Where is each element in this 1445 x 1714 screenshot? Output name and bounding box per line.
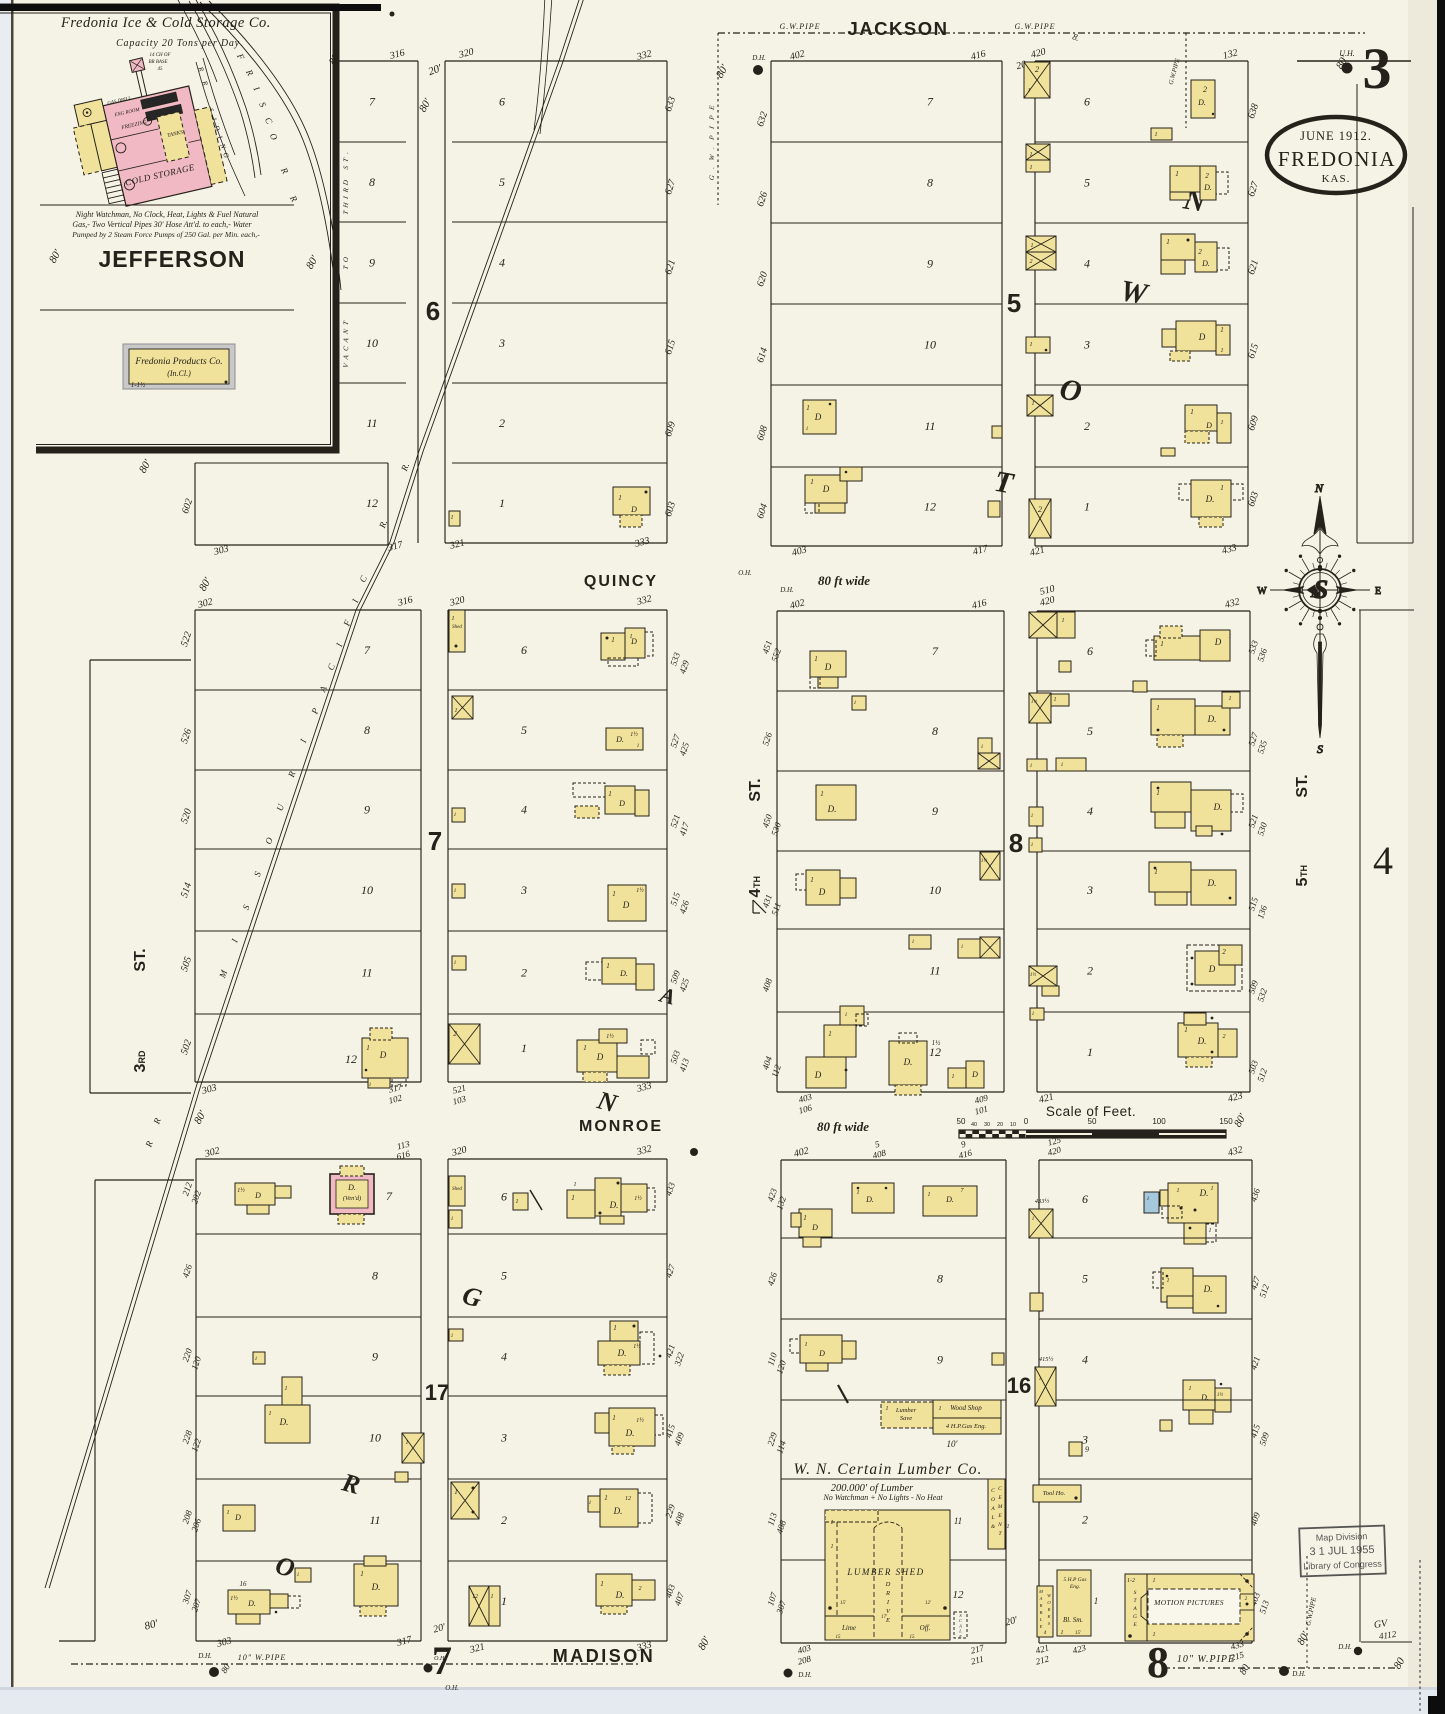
svg-text:L: L <box>1039 1617 1043 1622</box>
svg-text:1: 1 <box>606 962 610 970</box>
svg-text:1: 1 <box>1156 704 1160 712</box>
svg-text:D.: D. <box>1205 494 1215 504</box>
svg-text:Shed: Shed <box>452 1187 462 1192</box>
svg-text:6: 6 <box>501 1190 507 1204</box>
svg-text:1: 1 <box>952 1074 955 1080</box>
svg-text:12: 12 <box>625 1496 631 1502</box>
svg-text:D.: D. <box>1207 714 1217 724</box>
svg-text:1: 1 <box>820 790 824 798</box>
svg-text:D.: D. <box>865 1195 874 1204</box>
svg-text:11: 11 <box>929 964 940 978</box>
svg-text:1: 1 <box>1221 348 1224 354</box>
svg-text:80 ft wide: 80 ft wide <box>818 573 870 588</box>
svg-text:5: 5 <box>1294 877 1311 886</box>
svg-text:1: 1 <box>600 1580 604 1588</box>
svg-text:1: 1 <box>1211 1186 1214 1192</box>
svg-text:1: 1 <box>1177 1188 1180 1194</box>
svg-text:3 1 JUL 1955: 3 1 JUL 1955 <box>1309 1544 1374 1558</box>
svg-text:D.: D. <box>1197 98 1206 107</box>
svg-text:LUMBER SHED: LUMBER SHED <box>846 1567 924 1577</box>
svg-text:1: 1 <box>1007 1524 1010 1530</box>
svg-text:8: 8 <box>927 176 933 190</box>
svg-text:12: 12 <box>345 1052 357 1066</box>
svg-text:D.: D. <box>827 804 837 814</box>
svg-text:8: 8 <box>1147 1638 1169 1687</box>
svg-text:D.H.: D.H. <box>1337 1643 1352 1651</box>
svg-text:1: 1 <box>1189 1386 1192 1392</box>
svg-text:D.: D. <box>1199 1188 1209 1198</box>
svg-text:D.: D. <box>619 969 628 978</box>
svg-text:1: 1 <box>255 1357 258 1362</box>
svg-text:10" W.PIPE: 10" W.PIPE <box>238 1653 287 1662</box>
svg-text:No Watchman + No Lights - No H: No Watchman + No Lights - No Heat <box>822 1493 943 1502</box>
svg-text:1: 1 <box>1160 640 1164 648</box>
svg-text:1: 1 <box>406 1440 409 1446</box>
svg-text:1½: 1½ <box>1031 700 1038 705</box>
svg-text:M: M <box>1038 1589 1043 1594</box>
svg-text:D.: D. <box>279 1417 289 1427</box>
svg-text:6: 6 <box>1084 95 1090 109</box>
svg-text:1: 1 <box>455 708 458 714</box>
svg-text:1: 1 <box>618 494 622 502</box>
svg-text:1: 1 <box>604 1494 608 1502</box>
svg-text:1: 1 <box>1028 88 1031 94</box>
svg-text:1: 1 <box>369 1083 372 1088</box>
svg-text:D.: D. <box>945 1195 954 1204</box>
svg-text:10: 10 <box>924 338 936 352</box>
svg-text:1: 1 <box>1147 1197 1150 1202</box>
svg-text:2: 2 <box>1223 1034 1226 1040</box>
svg-text:1: 1 <box>454 961 457 966</box>
svg-text:1: 1 <box>451 1334 454 1339</box>
svg-text:12': 12' <box>925 1601 932 1606</box>
svg-text:15': 15' <box>840 1601 847 1606</box>
svg-text:4: 4 <box>1082 1353 1088 1367</box>
svg-text:QUINCY: QUINCY <box>584 573 658 590</box>
svg-text:O.H.: O.H. <box>445 1684 459 1692</box>
svg-text:1: 1 <box>1031 243 1034 249</box>
svg-text:D: D <box>885 1581 891 1588</box>
svg-text:14 CH OF: 14 CH OF <box>149 53 171 58</box>
svg-text:A: A <box>990 1506 995 1512</box>
svg-text:1: 1 <box>810 478 814 486</box>
svg-text:E: E <box>1132 1622 1137 1628</box>
svg-text:11: 11 <box>924 419 935 433</box>
svg-text:1: 1 <box>1032 1012 1035 1017</box>
svg-text:1: 1 <box>1175 170 1179 178</box>
svg-text:D: D <box>1198 332 1206 342</box>
svg-text:5 H.P Gas: 5 H.P Gas <box>1064 1577 1087 1583</box>
svg-text:D: D <box>622 900 630 910</box>
svg-text:D: D <box>234 1513 241 1522</box>
svg-text:4: 4 <box>1373 838 1393 883</box>
svg-text:1: 1 <box>805 1342 808 1348</box>
svg-text:1: 1 <box>1032 401 1035 407</box>
svg-text:2: 2 <box>1035 65 1039 74</box>
svg-text:1: 1 <box>806 427 809 432</box>
svg-text:D.: D. <box>615 1590 625 1600</box>
svg-text:1: 1 <box>1154 868 1158 876</box>
svg-text:1: 1 <box>1155 132 1158 138</box>
svg-text:ST.: ST. <box>747 778 764 801</box>
svg-text:1: 1 <box>886 1406 889 1412</box>
svg-text:1½: 1½ <box>636 887 644 894</box>
svg-text:D.: D. <box>347 1183 356 1192</box>
svg-text:G.W.PIPE: G.W.PIPE <box>1014 22 1055 31</box>
svg-text:2: 2 <box>639 1586 642 1592</box>
svg-text:1½: 1½ <box>1030 973 1037 978</box>
svg-text:1½: 1½ <box>237 1187 245 1194</box>
svg-text:D: D <box>596 1052 604 1062</box>
svg-text:1: 1 <box>637 744 640 749</box>
svg-text:15: 15 <box>910 1635 916 1640</box>
svg-text:W: W <box>1257 586 1267 597</box>
svg-text:1: 1 <box>1030 342 1033 348</box>
svg-text:1: 1 <box>803 1214 807 1222</box>
svg-text:4: 4 <box>501 1350 507 1364</box>
svg-text:D: D <box>630 505 637 514</box>
svg-text:R: R <box>1039 1603 1043 1608</box>
svg-text:G: G <box>1133 1614 1137 1620</box>
svg-text:1: 1 <box>1166 238 1170 246</box>
svg-text:2: 2 <box>1198 248 1202 256</box>
svg-text:8: 8 <box>1009 828 1023 858</box>
svg-text:10: 10 <box>361 883 373 897</box>
svg-text:D.: D. <box>1203 183 1212 192</box>
svg-text:1: 1 <box>499 496 505 510</box>
svg-text:15': 15' <box>1075 1631 1082 1636</box>
svg-text:M: M <box>997 1504 1003 1510</box>
svg-text:3: 3 <box>1363 36 1392 101</box>
svg-text:1: 1 <box>611 636 615 644</box>
svg-text:E: E <box>1039 1624 1043 1629</box>
svg-text:2: 2 <box>1082 1513 1088 1527</box>
svg-text:40: 40 <box>971 1122 977 1128</box>
svg-text:6: 6 <box>521 643 527 657</box>
svg-text:(In.Cl.): (In.Cl.) <box>167 369 191 378</box>
svg-text:Eng.: Eng. <box>1069 1584 1080 1590</box>
svg-text:D: D <box>1214 637 1222 647</box>
svg-text:Tool Ho.: Tool Ho. <box>1043 1490 1066 1497</box>
svg-text:D.: D. <box>371 1582 381 1592</box>
svg-text:A: A <box>1039 1596 1043 1601</box>
svg-text:D.: D. <box>613 1506 623 1516</box>
svg-text:6: 6 <box>499 95 505 109</box>
svg-text:11: 11 <box>361 966 372 980</box>
svg-text:1: 1 <box>1039 1377 1042 1382</box>
svg-text:9: 9 <box>932 804 938 818</box>
svg-text:1: 1 <box>501 1594 507 1608</box>
svg-text:1: 1 <box>1031 843 1034 848</box>
svg-text:1: 1 <box>454 889 457 894</box>
svg-text:1: 1 <box>831 1520 834 1526</box>
svg-text:3: 3 <box>132 1063 149 1072</box>
svg-text:1: 1 <box>912 940 915 945</box>
svg-text:8: 8 <box>932 724 938 738</box>
svg-text:2: 2 <box>1038 505 1042 514</box>
svg-text:1: 1 <box>227 1510 230 1516</box>
svg-text:15: 15 <box>836 1635 842 1640</box>
svg-text:W. N. Certain Lumber Co.: W. N. Certain Lumber Co. <box>793 1461 982 1478</box>
svg-text:RD: RD <box>137 1050 147 1063</box>
svg-text:KAS.: KAS. <box>1322 173 1351 185</box>
svg-text:1: 1 <box>1229 696 1232 702</box>
svg-text:TH: TH <box>752 876 762 888</box>
svg-text:D.H.: D.H. <box>779 586 794 594</box>
svg-text:2: 2 <box>1205 172 1209 180</box>
svg-text:Capacity 20 Tons per Day: Capacity 20 Tons per Day <box>116 38 240 49</box>
svg-text:20: 20 <box>997 1122 1003 1128</box>
svg-text:U.H.: U.H. <box>1339 49 1355 58</box>
svg-text:MADISON: MADISON <box>553 1646 656 1666</box>
svg-text:1: 1 <box>630 634 633 640</box>
svg-text:1: 1 <box>1030 165 1033 171</box>
svg-text:D.: D. <box>1207 878 1217 888</box>
svg-text:7: 7 <box>932 644 939 658</box>
svg-text:1: 1 <box>608 790 612 798</box>
svg-text:JACKSON: JACKSON <box>848 18 949 39</box>
svg-text:50: 50 <box>1088 1117 1097 1126</box>
svg-text:8: 8 <box>937 1272 943 1286</box>
svg-text:1: 1 <box>1030 152 1033 158</box>
svg-text:Save: Save <box>900 1415 912 1422</box>
svg-text:433½: 433½ <box>1035 1198 1050 1205</box>
svg-text:B: B <box>1040 1610 1043 1615</box>
svg-text:1: 1 <box>831 1544 834 1550</box>
svg-text:11: 11 <box>366 416 377 430</box>
svg-text:17': 17' <box>881 1615 888 1620</box>
svg-text:7: 7 <box>386 1189 393 1203</box>
svg-text:1: 1 <box>1061 763 1064 768</box>
svg-text:N: N <box>997 1522 1002 1528</box>
svg-text:7: 7 <box>428 826 442 856</box>
svg-text:E: E <box>997 1495 1002 1501</box>
svg-text:3: 3 <box>1083 338 1090 352</box>
svg-text:Lumber: Lumber <box>895 1407 917 1414</box>
svg-text:S: S <box>1134 1590 1137 1596</box>
svg-text:1: 1 <box>1209 1228 1212 1234</box>
svg-text:D: D <box>254 1191 261 1200</box>
svg-text:1: 1 <box>613 1324 617 1332</box>
svg-text:2: 2 <box>521 966 527 980</box>
svg-text:D: D <box>818 887 826 897</box>
svg-text:D.: D. <box>1200 1393 1209 1402</box>
svg-text:1½: 1½ <box>630 731 638 738</box>
svg-text:1: 1 <box>1054 697 1057 703</box>
svg-text:1: 1 <box>928 1192 931 1198</box>
svg-text:D.: D. <box>247 1599 256 1608</box>
svg-text:1: 1 <box>981 745 984 750</box>
svg-text:1: 1 <box>1184 1026 1188 1034</box>
svg-text:ST.: ST. <box>1294 774 1311 797</box>
svg-text:1: 1 <box>612 890 616 898</box>
svg-text:1½: 1½ <box>932 1039 942 1047</box>
svg-text:9: 9 <box>364 803 370 817</box>
svg-text:1: 1 <box>1167 1278 1170 1284</box>
svg-text:30: 30 <box>984 1122 990 1128</box>
svg-text:D.: D. <box>609 1200 619 1210</box>
svg-text:8: 8 <box>364 723 370 737</box>
svg-text:4: 4 <box>521 803 527 817</box>
svg-text:Shed: Shed <box>452 625 462 630</box>
svg-text:D.: D. <box>615 735 624 744</box>
svg-text:D: D <box>822 484 830 494</box>
svg-text:7: 7 <box>927 95 934 109</box>
svg-text:1½: 1½ <box>606 1033 614 1040</box>
svg-text:6: 6 <box>426 296 440 326</box>
svg-text:5: 5 <box>1007 288 1021 318</box>
svg-text:2: 2 <box>1087 964 1093 978</box>
svg-text:10: 10 <box>929 883 941 897</box>
svg-text:2: 2 <box>1084 419 1090 433</box>
svg-text:MONROE: MONROE <box>579 1118 663 1135</box>
svg-text:1: 1 <box>1084 500 1090 514</box>
svg-text:D: D <box>1205 421 1212 430</box>
svg-text:O.H.: O.H. <box>434 1656 446 1662</box>
svg-text:1-1½: 1-1½ <box>131 381 146 389</box>
svg-text:1: 1 <box>1153 1578 1156 1584</box>
svg-text:1: 1 <box>1156 789 1160 797</box>
svg-text:D.: D. <box>903 1057 913 1067</box>
svg-text:O.H.: O.H. <box>738 569 752 577</box>
svg-text:1½: 1½ <box>636 1417 644 1424</box>
svg-text:D.: D. <box>1197 1036 1207 1046</box>
svg-text:G.W.PIPE: G.W.PIPE <box>779 22 820 31</box>
svg-text:1: 1 <box>814 655 818 663</box>
svg-text:12: 12 <box>366 496 378 510</box>
svg-text:9: 9 <box>937 1353 943 1367</box>
svg-text:10': 10' <box>947 1439 959 1449</box>
svg-text:1½: 1½ <box>634 1195 642 1202</box>
svg-text:1: 1 <box>854 701 857 706</box>
svg-text:415½: 415½ <box>1039 1356 1054 1363</box>
svg-text:D.H.: D.H. <box>797 1671 812 1679</box>
svg-text:1: 1 <box>269 1411 272 1417</box>
svg-text:Off.: Off. <box>920 1624 931 1632</box>
svg-text:1: 1 <box>360 1570 364 1578</box>
svg-text:12: 12 <box>929 1045 941 1059</box>
svg-text:6: 6 <box>1082 1192 1088 1206</box>
svg-text:D: D <box>814 412 822 422</box>
svg-text:D: D <box>811 1223 818 1232</box>
svg-text:1: 1 <box>939 1406 942 1412</box>
svg-text:4: 4 <box>747 888 764 897</box>
svg-text:2: 2 <box>1030 259 1033 265</box>
svg-text:1: 1 <box>1190 408 1194 416</box>
svg-text:D.H.: D.H. <box>1291 1670 1306 1678</box>
svg-text:1: 1 <box>1220 326 1224 334</box>
svg-text:3: 3 <box>498 336 505 350</box>
svg-text:1: 1 <box>366 1044 370 1052</box>
svg-text:L: L <box>990 1515 994 1521</box>
svg-text:10" W.PIPE: 10" W.PIPE <box>1177 1654 1235 1665</box>
svg-text:10: 10 <box>1010 1122 1016 1128</box>
svg-text:D.H.: D.H. <box>197 1652 212 1660</box>
svg-text:Night Watchman, No Clock, Heat: Night Watchman, No Clock, Heat, Lights &… <box>75 210 259 219</box>
svg-text:1: 1 <box>516 1199 519 1205</box>
svg-text:A: A <box>1132 1606 1137 1612</box>
svg-text:FREDONIA: FREDONIA <box>1278 147 1396 171</box>
svg-text:1: 1 <box>1061 1630 1064 1636</box>
svg-text:R: R <box>1047 1607 1051 1612</box>
svg-text:R: R <box>885 1590 890 1597</box>
svg-text:100: 100 <box>1152 1117 1166 1126</box>
svg-text:1: 1 <box>297 1573 300 1578</box>
svg-text:1: 1 <box>845 1013 848 1018</box>
svg-text:D: D <box>379 1050 387 1060</box>
svg-text:7: 7 <box>369 95 376 109</box>
svg-text:4: 4 <box>499 256 505 270</box>
svg-text:TH: TH <box>1299 865 1309 877</box>
svg-text:1: 1 <box>1062 618 1065 624</box>
svg-text:12: 12 <box>472 1594 478 1600</box>
svg-text:5: 5 <box>501 1269 507 1283</box>
svg-text:3: 3 <box>500 1431 507 1445</box>
svg-text:C: C <box>991 1488 995 1494</box>
svg-text:D.: D. <box>1201 259 1210 268</box>
svg-text:D: D <box>818 1349 825 1358</box>
svg-text:BR BASE: BR BASE <box>148 60 167 65</box>
svg-text:1: 1 <box>521 1041 527 1055</box>
svg-text:5: 5 <box>1082 1272 1088 1286</box>
svg-text:MOTION PICTURES: MOTION PICTURES <box>1153 1598 1224 1607</box>
svg-text:1: 1 <box>454 813 457 818</box>
svg-text:4: 4 <box>1084 257 1090 271</box>
svg-text:Bl. Sm.: Bl. Sm. <box>1063 1616 1083 1624</box>
svg-text:2: 2 <box>1222 948 1226 956</box>
svg-text:50: 50 <box>957 1117 966 1126</box>
svg-text:3: 3 <box>1086 883 1093 897</box>
svg-text:E: E <box>997 1513 1002 1519</box>
svg-text:1: 1 <box>857 1190 860 1196</box>
svg-text:9: 9 <box>372 1350 378 1364</box>
svg-text:3: 3 <box>520 883 527 897</box>
svg-text:1: 1 <box>828 1030 832 1038</box>
svg-text:1½: 1½ <box>981 859 988 864</box>
svg-text:D: D <box>814 1070 822 1080</box>
svg-text:JEFFERSON: JEFFERSON <box>98 246 245 272</box>
svg-text:1: 1 <box>1031 814 1034 819</box>
svg-text:D.: D. <box>617 1348 627 1358</box>
svg-text:Lime: Lime <box>841 1624 856 1632</box>
svg-text:8: 8 <box>372 1269 378 1283</box>
svg-text:Pumped by 2 Steam Force Pumps: Pumped by 2 Steam Force Pumps of 250 Gal… <box>71 230 260 239</box>
svg-text:D.H.: D.H. <box>751 54 766 62</box>
svg-text:1: 1 <box>285 1386 288 1392</box>
svg-text:2: 2 <box>1203 85 1207 94</box>
svg-text:N: N <box>1314 481 1324 495</box>
svg-text:4: 4 <box>1087 804 1093 818</box>
svg-text:Gas,- Two Vertical Pipes 30' H: Gas,- Two Vertical Pipes 30' Hose Att'd.… <box>72 220 252 229</box>
svg-text:12: 12 <box>924 500 936 514</box>
svg-text:8: 8 <box>369 175 375 189</box>
svg-text:5: 5 <box>1087 724 1093 738</box>
svg-text:D: D <box>971 1070 978 1079</box>
svg-text:1: 1 <box>1094 1596 1099 1606</box>
svg-text:1: 1 <box>491 1594 494 1600</box>
svg-text:4 H.P.Gas Eng.: 4 H.P.Gas Eng. <box>946 1423 987 1430</box>
svg-text:Wood Shop: Wood Shop <box>950 1404 982 1412</box>
svg-text:D: D <box>824 662 832 672</box>
svg-text:D: D <box>1208 964 1216 974</box>
svg-text:JUNE 1912.: JUNE 1912. <box>1300 129 1372 143</box>
svg-text:11: 11 <box>954 1516 962 1526</box>
svg-text:80 ft wide: 80 ft wide <box>817 1119 869 1134</box>
svg-text:9: 9 <box>369 256 375 270</box>
svg-text:S: S <box>1317 742 1323 756</box>
svg-text:D: D <box>618 799 625 808</box>
svg-text:1: 1 <box>612 1414 616 1422</box>
